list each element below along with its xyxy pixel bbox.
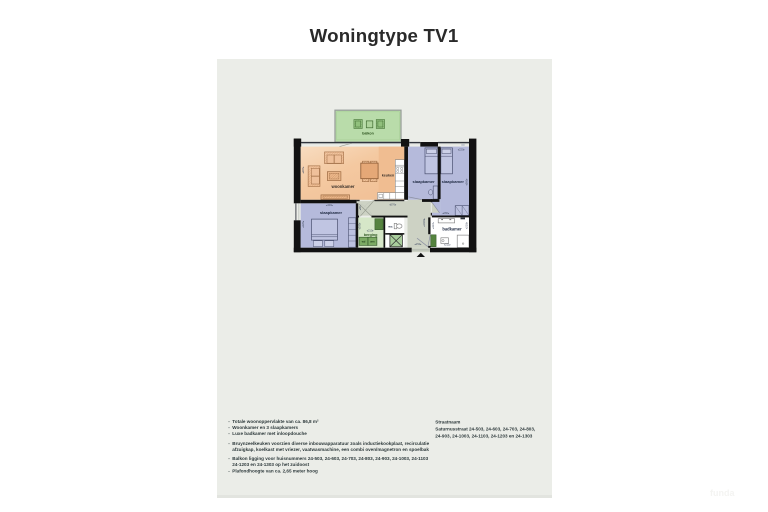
svg-text:slaapkamer: slaapkamer (412, 179, 435, 184)
svg-text:◂560▸: ◂560▸ (465, 178, 469, 186)
svg-text:◂280▸: ◂280▸ (442, 211, 450, 215)
svg-text:◂576▸: ◂576▸ (389, 203, 397, 207)
svg-text:keuken: keuken (382, 174, 395, 178)
svg-text:24-903, 24-1003, 24-1103, 24-1: 24-903, 24-1003, 24-1103, 24-1203 en 24-… (435, 433, 533, 438)
svg-text:◂211▸: ◂211▸ (444, 243, 452, 247)
svg-text:Bruynzeelkeuken voorzien diver: Bruynzeelkeuken voorzien diverse inbouwa… (232, 441, 429, 446)
svg-text:24-1203 en 24-1303 op het zuid: 24-1203 en 24-1303 op het zuidoost (232, 462, 309, 467)
svg-text:◂400▸: ◂400▸ (326, 203, 334, 207)
svg-text:-: - (228, 431, 230, 436)
svg-text:Plafondhoogte van ca. 2,65 met: Plafondhoogte van ca. 2,65 meter hoog (232, 468, 318, 473)
svg-text:◂320▸: ◂320▸ (301, 220, 305, 228)
svg-text:Saturnusstraat 24-503, 24-603,: Saturnusstraat 24-503, 24-603, 24-703, 2… (435, 427, 535, 432)
svg-text:Totale woonoppervlakte van ca.: Totale woonoppervlakte van ca. 86,8 m² (232, 419, 319, 424)
svg-text:Balkon ligging voor huisnummer: Balkon ligging voor huisnummers 24-503, … (232, 456, 428, 461)
svg-text:◂387▸: ◂387▸ (301, 166, 305, 174)
svg-text:-: - (228, 425, 230, 430)
svg-text:badkamer: badkamer (442, 227, 462, 232)
svg-text:-: - (228, 468, 230, 473)
svg-text:slaapkamer: slaapkamer (320, 210, 343, 215)
svg-text:berging: berging (364, 233, 378, 237)
svg-text:wc: wc (387, 224, 392, 228)
svg-text:-: - (228, 456, 230, 461)
svg-text:Straatnaam: Straatnaam (435, 420, 460, 425)
svg-text:◂210▸: ◂210▸ (464, 221, 468, 229)
svg-text:slaapkamer: slaapkamer (442, 179, 465, 184)
svg-text:wd: wd (362, 240, 366, 244)
svg-text:funda: funda (710, 488, 735, 498)
svg-text:Luxe badkamer met inloopdouche: Luxe badkamer met inloopdouche (232, 431, 307, 436)
svg-text:-: - (228, 441, 230, 446)
svg-text:afzuigkap, koelkast met vrieze: afzuigkap, koelkast met vriezer, vaatwas… (232, 447, 429, 452)
svg-text:◂210▸: ◂210▸ (367, 229, 375, 233)
svg-text:woonkamer: woonkamer (330, 184, 354, 189)
svg-text:-: - (228, 419, 230, 424)
svg-text:◂220▸: ◂220▸ (458, 147, 466, 151)
svg-text:◂117▸: ◂117▸ (431, 221, 435, 229)
svg-text:◂200▸: ◂200▸ (358, 222, 362, 230)
svg-text:◂150▸: ◂150▸ (414, 242, 422, 246)
svg-text:wm: wm (370, 241, 375, 244)
svg-text:◂1020▸: ◂1020▸ (422, 218, 426, 227)
svg-text:Woonkamer en 3 slaapkamers: Woonkamer en 3 slaapkamers (232, 425, 298, 430)
svg-text:balkon: balkon (362, 131, 374, 135)
